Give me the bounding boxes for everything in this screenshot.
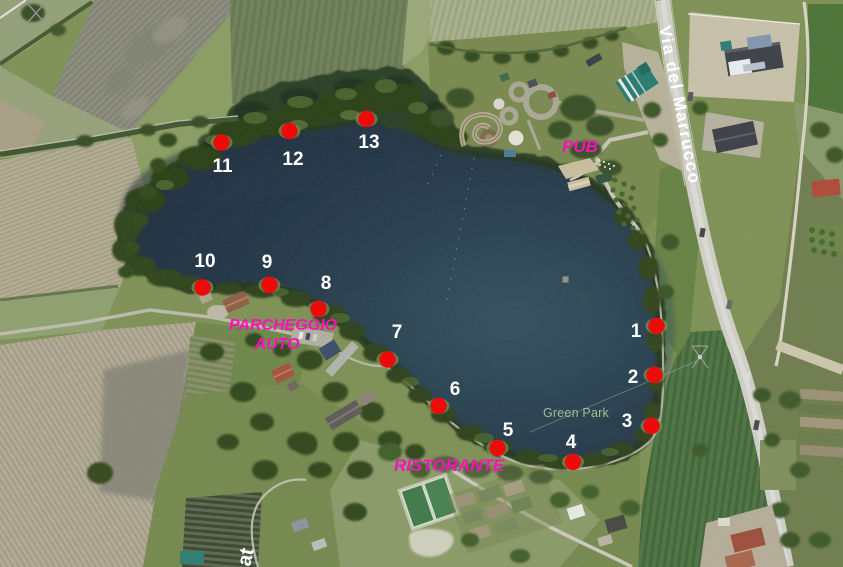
svg-text:Green Park: Green Park [543,406,609,420]
svg-text:9: 9 [262,252,273,273]
svg-text:7: 7 [392,322,403,343]
svg-text:8: 8 [321,273,332,294]
svg-text:AUTO: AUTO [253,336,300,353]
svg-text:11: 11 [212,156,233,177]
svg-text:1: 1 [631,321,642,342]
svg-text:2: 2 [628,367,639,388]
svg-text:RISTORANTE: RISTORANTE [394,456,505,475]
svg-text:6: 6 [450,379,461,400]
svg-text:4: 4 [566,432,577,453]
svg-text:10: 10 [194,251,215,272]
svg-text:PARCHEGGIO: PARCHEGGIO [229,317,338,334]
svg-text:5: 5 [503,420,514,441]
svg-text:3: 3 [622,411,633,432]
svg-text:PUB: PUB [562,137,598,156]
svg-text:12: 12 [282,149,303,170]
svg-text:13: 13 [358,132,379,153]
